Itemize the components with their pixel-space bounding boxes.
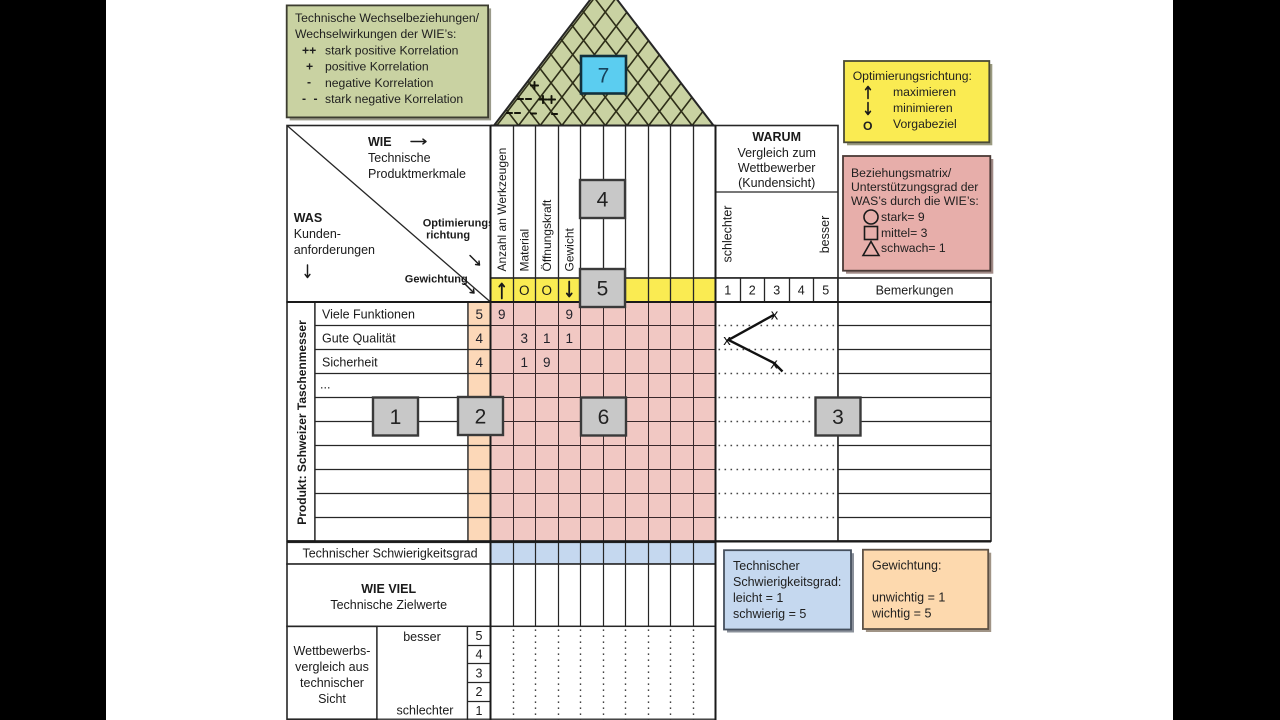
svg-text:3: 3: [476, 666, 483, 680]
svg-text:O: O: [863, 119, 872, 133]
svg-text:minimieren: minimieren: [893, 101, 953, 115]
svg-text:1: 1: [476, 704, 483, 718]
svg-text:x: x: [771, 307, 779, 324]
svg-text:unwichtig = 1: unwichtig = 1: [872, 591, 945, 605]
svg-text:1: 1: [565, 331, 573, 346]
svg-text:Gewichtung: Gewichtung: [405, 274, 468, 286]
svg-text:Material: Material: [517, 229, 531, 272]
svg-text:3: 3: [773, 284, 780, 298]
svg-text:++: ++: [302, 43, 316, 57]
svg-text:WAS’s durch die WIE’s:: WAS’s durch die WIE’s:: [851, 194, 979, 208]
svg-text:vergleich aus: vergleich aus: [295, 660, 369, 674]
svg-text:5: 5: [476, 629, 483, 643]
svg-text:6: 6: [598, 406, 610, 429]
svg-text:Technischer Schwierigkeitsgrad: Technischer Schwierigkeitsgrad: [302, 547, 477, 561]
svg-text:5: 5: [822, 284, 829, 298]
svg-text:...: ...: [320, 378, 330, 392]
svg-text:schwach= 1: schwach= 1: [881, 241, 946, 255]
svg-text:O: O: [519, 283, 530, 298]
svg-text:3: 3: [520, 331, 528, 346]
svg-text:Beziehungsmatrix/: Beziehungsmatrix/: [851, 166, 952, 180]
svg-text:besser: besser: [403, 630, 441, 644]
svg-text:4: 4: [798, 284, 805, 298]
svg-text:9: 9: [565, 307, 573, 322]
svg-text:wichtig = 5: wichtig = 5: [871, 607, 931, 621]
svg-text:3: 3: [832, 406, 844, 429]
svg-text:stark= 9: stark= 9: [881, 210, 925, 224]
svg-text:WAS: WAS: [294, 211, 322, 225]
svg-text:Öffnungskraft: Öffnungskraft: [540, 199, 554, 271]
svg-text:Wettbewerber: Wettbewerber: [738, 161, 816, 175]
svg-text:Vergleich zum: Vergleich zum: [737, 146, 816, 160]
svg-text:x: x: [770, 356, 778, 373]
svg-text:5: 5: [476, 307, 484, 322]
svg-text:Sicherheit: Sicherheit: [322, 356, 378, 370]
svg-text:Vorgabeziel: Vorgabeziel: [893, 117, 957, 131]
svg-text:4: 4: [476, 355, 484, 370]
svg-text:Unterstützungsgrad der: Unterstützungsgrad der: [851, 180, 978, 194]
svg-text:Technischer: Technischer: [733, 559, 800, 573]
svg-text:technischer: technischer: [300, 676, 364, 690]
svg-text:maximieren: maximieren: [893, 85, 956, 99]
svg-text:Produktmerkmale: Produktmerkmale: [368, 167, 466, 181]
svg-text:2: 2: [475, 406, 487, 429]
svg-text:Bemerkungen: Bemerkungen: [876, 284, 954, 298]
svg-text:Technische Zielwerte: Technische Zielwerte: [330, 598, 447, 612]
svg-text:leicht = 1: leicht = 1: [733, 591, 783, 605]
svg-text:(Kundensicht): (Kundensicht): [738, 176, 815, 190]
svg-text:Technische Wechselbeziehungen/: Technische Wechselbeziehungen/: [295, 11, 480, 25]
svg-text:Wechselwirkungen der WIE’s:: Wechselwirkungen der WIE’s:: [295, 27, 456, 41]
svg-text:richtung: richtung: [426, 230, 470, 242]
svg-text:Schwierigkeitsgrad:: Schwierigkeitsgrad:: [733, 575, 841, 589]
svg-text:Gewichtung:: Gewichtung:: [872, 559, 941, 573]
svg-text:Sicht: Sicht: [318, 692, 346, 706]
svg-text:negative Korrelation: negative Korrelation: [325, 76, 433, 90]
svg-text:stark positive Korrelation: stark positive Korrelation: [325, 43, 458, 57]
svg-text:2: 2: [749, 284, 756, 298]
svg-text:mittel= 3: mittel= 3: [881, 226, 928, 240]
svg-text:schlechter: schlechter: [397, 704, 454, 718]
svg-text:7: 7: [598, 65, 610, 88]
svg-text:Kunden-: Kunden-: [294, 227, 341, 241]
svg-text:1: 1: [543, 331, 551, 346]
svg-text:4: 4: [476, 648, 483, 662]
svg-text:1: 1: [724, 284, 731, 298]
svg-text:WIE: WIE: [368, 135, 392, 149]
svg-text:Optimierungsrichtung:: Optimierungsrichtung:: [853, 69, 972, 83]
svg-text:Produkt: Schweizer Taschenmess: Produkt: Schweizer Taschenmesser: [295, 320, 309, 525]
svg-text:9: 9: [543, 355, 551, 370]
svg-text:+: +: [306, 60, 313, 74]
svg-text:WIE VIEL: WIE VIEL: [361, 582, 416, 596]
svg-text:schwierig = 5: schwierig = 5: [733, 607, 806, 621]
svg-text:WARUM: WARUM: [752, 130, 801, 144]
svg-text:Optimierungs-: Optimierungs-: [423, 218, 499, 230]
svg-text:positive Korrelation: positive Korrelation: [325, 60, 429, 74]
svg-text:2: 2: [476, 685, 483, 699]
svg-text:4: 4: [476, 331, 484, 346]
svg-text:4: 4: [597, 189, 609, 212]
svg-text:5: 5: [597, 278, 609, 301]
svg-text:O: O: [541, 283, 552, 298]
svg-text:Gute Qualität: Gute Qualität: [322, 332, 396, 346]
svg-text:9: 9: [498, 307, 506, 322]
svg-text:anforderungen: anforderungen: [294, 243, 375, 257]
svg-text:1: 1: [520, 355, 528, 370]
svg-text:Gewicht: Gewicht: [562, 227, 576, 271]
svg-text:besser: besser: [818, 216, 832, 254]
svg-text:1: 1: [390, 406, 402, 429]
svg-text:-: -: [307, 75, 311, 89]
svg-text:Wettbewerbs-: Wettbewerbs-: [294, 644, 371, 658]
svg-text:x: x: [723, 332, 731, 349]
svg-text:- -: - -: [302, 91, 320, 105]
svg-text:schlechter: schlechter: [721, 206, 735, 263]
svg-text:Technische: Technische: [368, 151, 431, 165]
svg-text:stark negative Korrelation: stark negative Korrelation: [325, 92, 463, 106]
svg-text:Anzahl an Werkzeugen: Anzahl an Werkzeugen: [495, 148, 509, 272]
svg-text:Viele Funktionen: Viele Funktionen: [322, 308, 415, 322]
